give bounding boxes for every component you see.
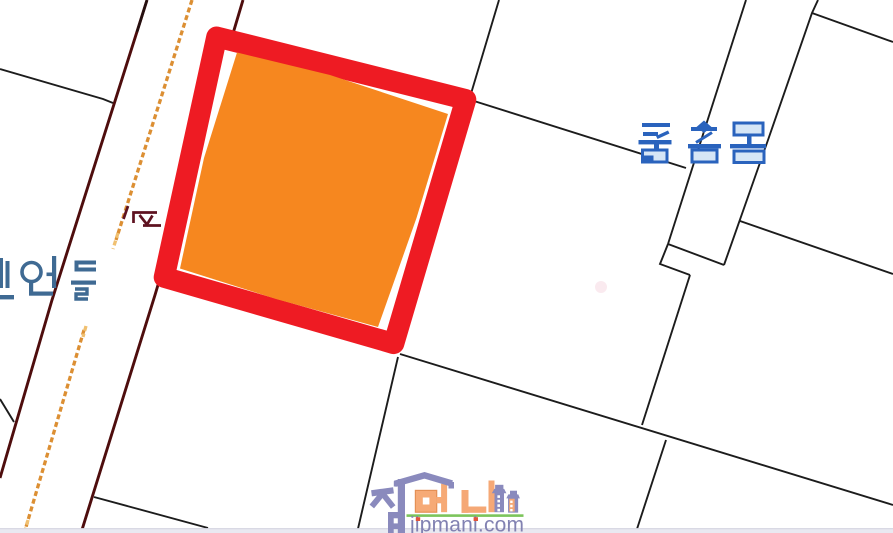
svg-text:jipmani.com: jipmani.com	[409, 514, 524, 533]
